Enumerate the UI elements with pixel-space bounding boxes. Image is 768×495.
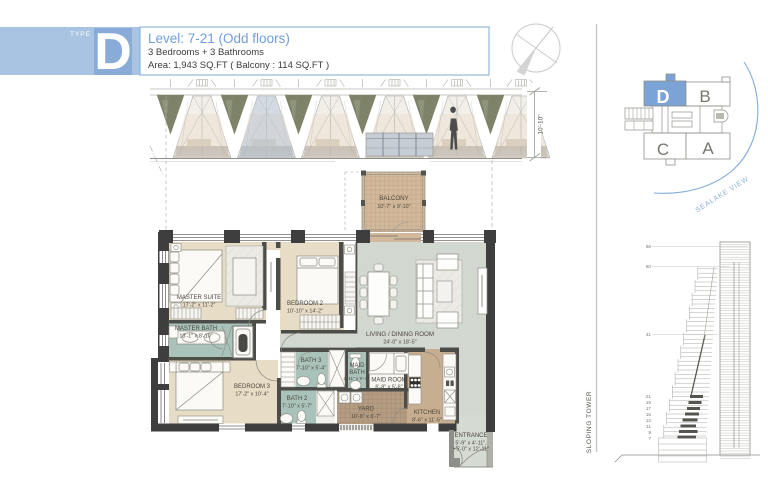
svg-text:3 Bedrooms + 3 Bathrooms: 3 Bedrooms + 3 Bathrooms — [148, 47, 264, 58]
svg-text:17: 17 — [646, 406, 652, 411]
svg-text:BATH 2: BATH 2 — [287, 396, 308, 402]
svg-text:BEDROOM 2: BEDROOM 2 — [287, 301, 324, 307]
svg-text:A: A — [702, 139, 714, 158]
svg-text:10'-7" x 9'-10": 10'-7" x 9'-10" — [377, 204, 410, 210]
svg-text:D: D — [657, 87, 670, 107]
svg-text:MASTER SUITE: MASTER SUITE — [177, 295, 221, 301]
svg-text:7'-10" x 5'-7": 7'-10" x 5'-7" — [282, 404, 312, 410]
svg-text:41: 41 — [646, 332, 652, 337]
svg-text:C: C — [657, 140, 669, 159]
svg-text:YARD: YARD — [358, 407, 375, 413]
svg-text:66: 66 — [646, 244, 652, 249]
svg-text:6'-8" x 5'-6": 6'-8" x 5'-6" — [375, 385, 402, 391]
svg-text:Area: 1,943 SQ.FT ( Balcony :: Area: 1,943 SQ.FT ( Balcony : 114 SQ.FT … — [148, 60, 329, 71]
svg-text:8'-6" x 11'-5": 8'-6" x 11'-5" — [412, 418, 442, 424]
svg-text:10'-8" x 6'-7": 10'-8" x 6'-7" — [351, 414, 381, 420]
svg-text:BEDROOM 3: BEDROOM 3 — [234, 384, 271, 390]
svg-text:13'-1" x 8'-10": 13'-1" x 8'-10" — [179, 334, 212, 340]
svg-text:LIVING / DINING ROOM: LIVING / DINING ROOM — [366, 331, 434, 338]
svg-text:10'-10" x 14'-2": 10'-10" x 14'-2" — [287, 309, 323, 315]
svg-text:19: 19 — [646, 400, 652, 405]
svg-text:7'-10" x 5'-4": 7'-10" x 5'-4" — [296, 366, 326, 372]
svg-text:2'-11" x 9'-4": 2'-11" x 9'-4" — [343, 376, 369, 381]
svg-text:+5'-0" x 12'-11": +5'-0" x 12'-11" — [453, 447, 489, 453]
svg-text:9: 9 — [648, 430, 651, 435]
svg-text:17'-2" x 11'-2": 17'-2" x 11'-2" — [183, 303, 216, 309]
svg-text:11: 11 — [646, 424, 651, 429]
svg-text:SLOPING TOWER: SLOPING TOWER — [586, 391, 593, 453]
svg-text:24'-0" x 18'-5": 24'-0" x 18'-5" — [383, 340, 416, 346]
svg-text:BATH 3: BATH 3 — [301, 358, 322, 364]
svg-text:BALCONY: BALCONY — [379, 195, 409, 202]
svg-text:KITCHEN: KITCHEN — [414, 410, 440, 416]
svg-text:B: B — [699, 87, 710, 106]
svg-text:13: 13 — [646, 418, 652, 423]
svg-text:ENTRANCE: ENTRANCE — [454, 433, 487, 439]
svg-text:21: 21 — [646, 394, 652, 399]
svg-text:D: D — [94, 23, 132, 81]
svg-text:7: 7 — [648, 436, 651, 441]
svg-text:MAID ROOM: MAID ROOM — [371, 378, 406, 384]
svg-text:15: 15 — [646, 412, 652, 417]
svg-text:10'-10": 10'-10" — [538, 114, 545, 135]
svg-text:TYPE: TYPE — [70, 31, 91, 38]
svg-text:60: 60 — [646, 264, 652, 269]
svg-text:MAID: MAID — [350, 363, 366, 369]
svg-text:17'-2" x 10'-4": 17'-2" x 10'-4" — [235, 392, 268, 398]
svg-text:MASTER BATH: MASTER BATH — [175, 326, 217, 332]
svg-text:Level: 7-21 (Odd floors): Level: 7-21 (Odd floors) — [148, 31, 290, 46]
